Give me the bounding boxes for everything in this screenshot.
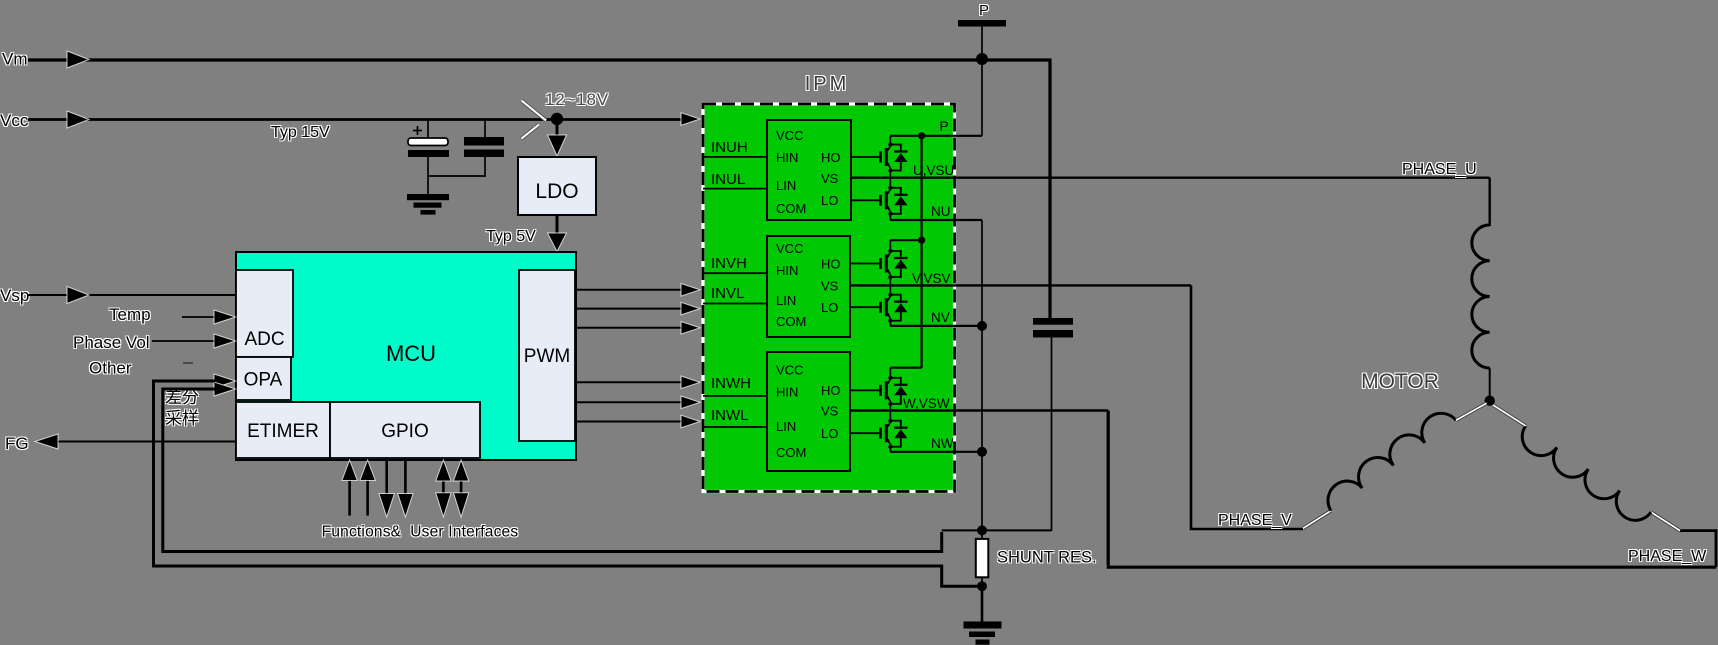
svg-text:INVL: INVL	[711, 285, 744, 302]
svg-text:INVH: INVH	[711, 255, 747, 272]
svg-text:COM: COM	[776, 314, 806, 329]
svg-text:ADC: ADC	[244, 329, 284, 350]
svg-text:LIN: LIN	[776, 178, 796, 193]
svg-text:PHASE_V: PHASE_V	[1218, 512, 1292, 529]
svg-text:NV: NV	[931, 310, 950, 325]
svg-text:MOTOR: MOTOR	[1361, 370, 1439, 393]
svg-text:LO: LO	[821, 300, 838, 315]
svg-text:LIN: LIN	[776, 293, 796, 308]
svg-text:HO: HO	[821, 150, 841, 165]
svg-text:Functions& User Interfaces: Functions& User Interfaces	[322, 524, 519, 541]
svg-text:U,VSU: U,VSU	[913, 163, 954, 178]
svg-text:HIN: HIN	[776, 384, 798, 399]
svg-text:12~18V: 12~18V	[545, 90, 609, 109]
svg-text:VCC: VCC	[776, 241, 803, 256]
svg-text:W,VSW: W,VSW	[903, 396, 950, 411]
svg-text:Vm: Vm	[2, 50, 28, 69]
svg-text:COM: COM	[776, 201, 806, 216]
svg-text:LO: LO	[821, 193, 838, 208]
svg-text:HIN: HIN	[776, 263, 798, 278]
svg-text:FG: FG	[5, 434, 29, 453]
svg-text:LO: LO	[821, 426, 838, 441]
svg-text:NU: NU	[931, 204, 951, 219]
svg-text:SHUNT RES.: SHUNT RES.	[997, 549, 1097, 567]
svg-text:IPM: IPM	[805, 73, 850, 95]
svg-text:HIN: HIN	[776, 150, 798, 165]
svg-text:Temp: Temp	[109, 305, 151, 324]
svg-text:Vsp: Vsp	[0, 286, 29, 305]
svg-text:采样: 采样	[165, 409, 199, 428]
svg-text:GPIO: GPIO	[381, 421, 429, 442]
svg-text:INWH: INWH	[711, 375, 751, 392]
svg-text:ETIMER: ETIMER	[247, 421, 319, 442]
svg-text:PHASE_W: PHASE_W	[1628, 548, 1707, 565]
svg-text:VS: VS	[821, 279, 839, 294]
svg-text:VS: VS	[821, 403, 839, 418]
svg-text:INUL: INUL	[711, 171, 745, 188]
svg-text:VCC: VCC	[776, 362, 803, 377]
svg-text:INUH: INUH	[711, 139, 748, 156]
svg-text:Other: Other	[89, 359, 132, 378]
svg-text:VS: VS	[821, 171, 839, 186]
svg-text:Phase Vol: Phase Vol	[73, 333, 150, 352]
svg-text:Typ 5V: Typ 5V	[486, 228, 536, 245]
svg-text:PWM: PWM	[524, 346, 570, 367]
svg-text:VCC: VCC	[776, 128, 803, 143]
svg-text:OPA: OPA	[244, 370, 283, 391]
svg-text:Vcc: Vcc	[0, 111, 29, 130]
svg-text:差分: 差分	[165, 388, 199, 407]
svg-text:COM: COM	[776, 445, 806, 460]
svg-text:NW: NW	[931, 436, 954, 451]
svg-text:P: P	[939, 118, 948, 134]
svg-text:MCU: MCU	[386, 341, 436, 366]
svg-text:HO: HO	[821, 256, 841, 271]
svg-text:PHASE_U: PHASE_U	[1402, 161, 1477, 178]
svg-text:LDO: LDO	[535, 180, 578, 203]
svg-text:Typ 15V: Typ 15V	[271, 124, 330, 141]
svg-text:LIN: LIN	[776, 419, 796, 434]
svg-text:V,VSV: V,VSV	[912, 271, 951, 286]
svg-text:HO: HO	[821, 383, 841, 398]
svg-text:P: P	[979, 2, 989, 19]
svg-text:INWL: INWL	[711, 407, 749, 424]
